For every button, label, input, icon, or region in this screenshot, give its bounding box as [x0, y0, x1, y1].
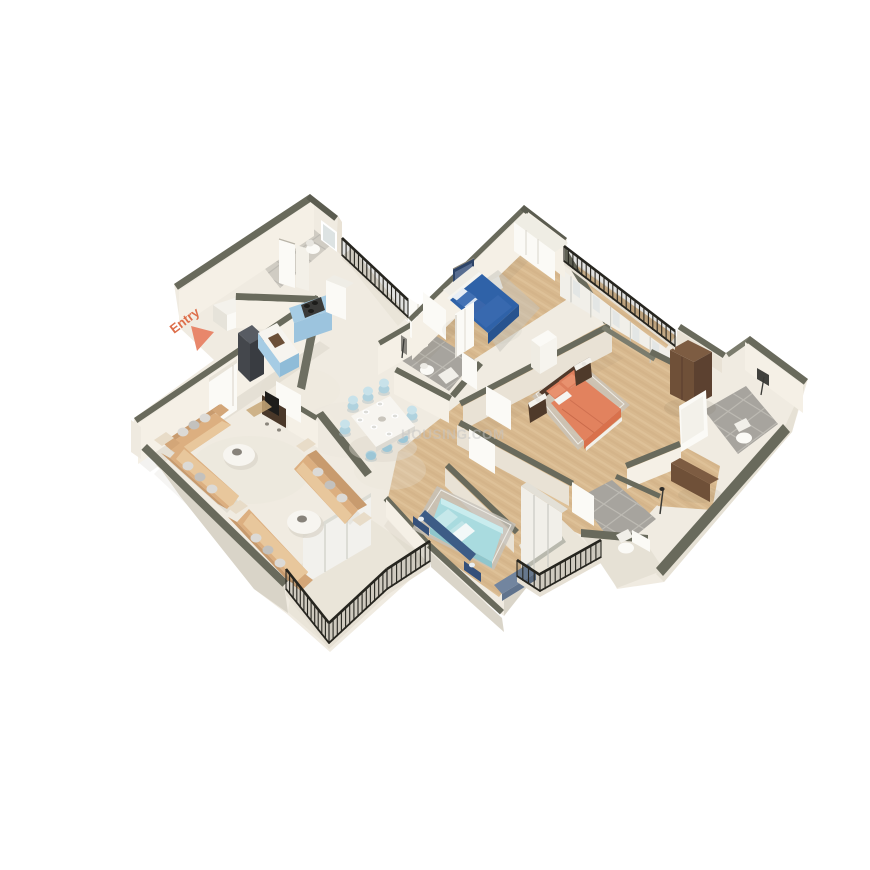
svg-text:HOUSING.COM: HOUSING.COM — [401, 427, 505, 442]
